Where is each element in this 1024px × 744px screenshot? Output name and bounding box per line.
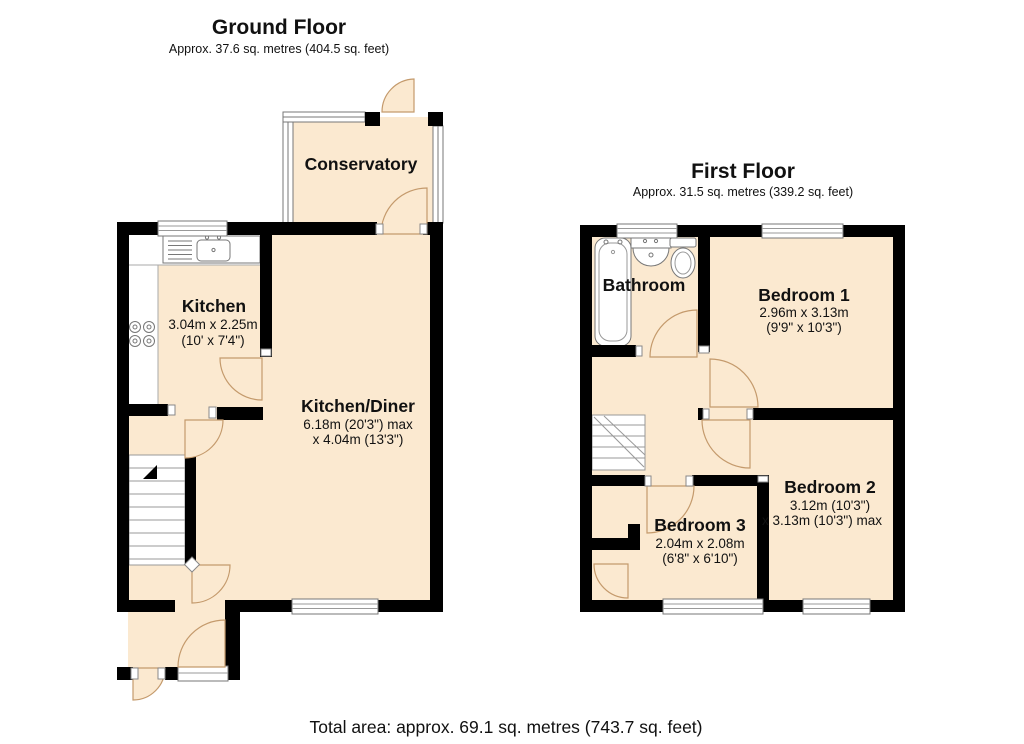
toilet-fixture: [670, 238, 696, 278]
room-dims-kitchen-metric: 3.04m x 2.25m: [168, 317, 257, 333]
ground-floor-subtitle: Approx. 37.6 sq. metres (404.5 sq. feet): [169, 42, 389, 56]
sink-fixture: [163, 236, 260, 263]
room-dims-bedroom-1-metric: 2.96m x 3.13m: [759, 305, 848, 321]
room-dims-bedroom-3-imperial: (6'8" x 6'10"): [662, 551, 738, 567]
room-label-bedroom-3: Bedroom 3: [654, 515, 745, 535]
first-floor-subtitle: Approx. 31.5 sq. metres (339.2 sq. feet): [633, 185, 853, 199]
floorplan-page: Ground Floor Approx. 37.6 sq. metres (40…: [0, 0, 1024, 744]
room-label-bathroom: Bathroom: [603, 275, 686, 295]
total-area-text: Total area: approx. 69.1 sq. metres (743…: [310, 717, 703, 737]
room-dims-bedroom-1-imperial: (9'9" x 10'3"): [766, 320, 842, 336]
room-label-bedroom-1: Bedroom 1: [758, 285, 849, 305]
ground-floor-room-fills: [128, 117, 435, 668]
ground-floor-stairs: [129, 455, 185, 565]
ground-floor-title: Ground Floor: [212, 16, 346, 40]
room-label-bedroom-2: Bedroom 2: [784, 477, 875, 497]
room-dims-bedroom-2-2: x 3.13m (10'3") max: [762, 513, 882, 529]
room-label-kitchen: Kitchen: [182, 296, 246, 316]
first-floor-stairs: [592, 415, 645, 470]
room-dims-kitchen-imperial: (10' x 7'4"): [181, 333, 244, 349]
room-dims-bedroom-2-1: 3.12m (10'3"): [790, 498, 870, 514]
room-label-conservatory: Conservatory: [305, 154, 418, 174]
room-dims-bedroom-3-metric: 2.04m x 2.08m: [655, 536, 744, 552]
first-floor-title: First Floor: [691, 160, 795, 184]
room-label-kitchen-diner: Kitchen/Diner: [301, 396, 415, 416]
room-dims-kitchen-diner-1: 6.18m (20'3") max: [303, 417, 412, 433]
floorplan-drawing: [0, 0, 1024, 744]
room-dims-kitchen-diner-2: x 4.04m (13'3"): [313, 432, 404, 448]
